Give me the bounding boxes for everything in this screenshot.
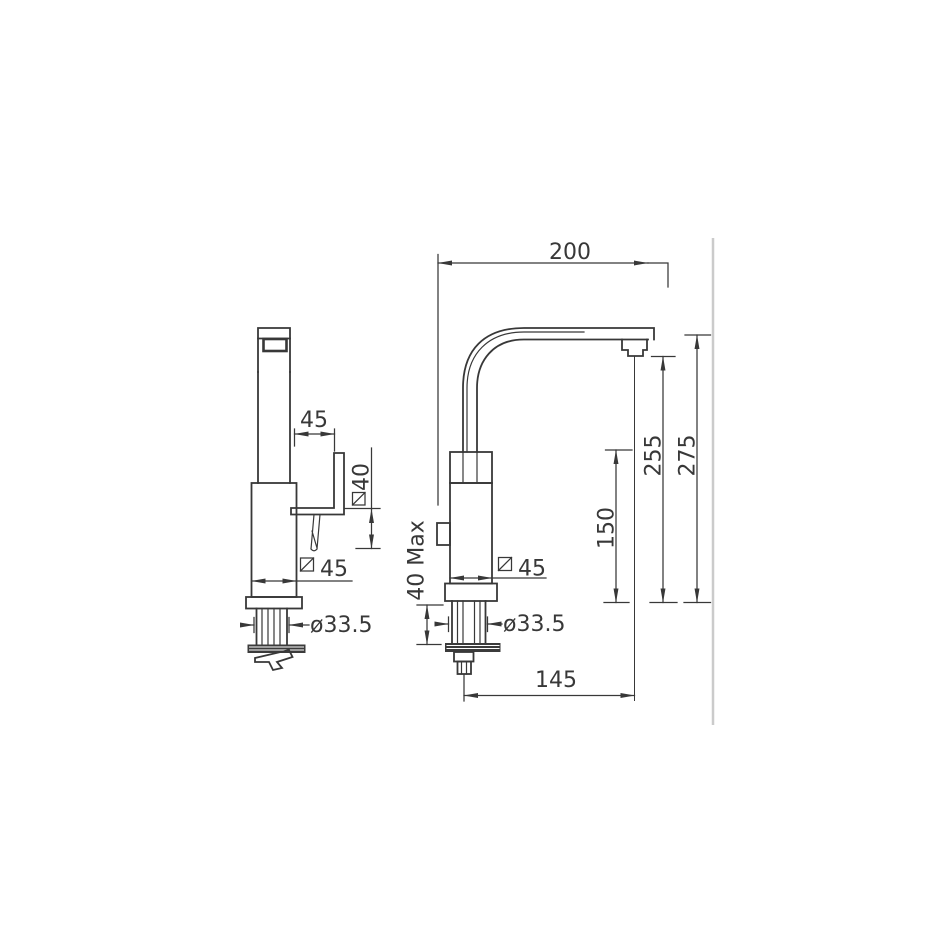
technical-drawing-page: 45 40 45 ø33.5 [0, 0, 950, 950]
neck-section [450, 452, 492, 483]
faucet-body [252, 483, 297, 597]
gooseneck-spout-mid [467, 332, 584, 452]
dimensions-front-view: 45 40 45 ø33.5 [241, 408, 380, 638]
faucet-dimension-drawing: 45 40 45 ø33.5 [0, 0, 950, 950]
shank [257, 609, 288, 645]
dim-spout-reach: 200 [438, 240, 668, 505]
dim-body-width-side: 45 [450, 557, 546, 582]
spout-column [258, 372, 290, 483]
dim-shank-diameter-front: ø33.5 [241, 613, 372, 638]
base-flange [246, 597, 302, 609]
handle-end-view [437, 523, 450, 545]
dim-label-shank-diameter-side: ø33.5 [503, 612, 565, 637]
dim-label-body-width-side: 45 [518, 557, 546, 582]
neck-inner-lines [463, 452, 477, 483]
dim-label-body-width-front: 45 [320, 557, 348, 582]
dim-handle-height: 40 [345, 448, 380, 549]
shank-threads [262, 609, 280, 645]
dim-label-spout-reach: 200 [549, 240, 591, 265]
dim-label-overall-height: 275 [676, 435, 701, 477]
dim-label-handle-height: 40 [350, 463, 375, 491]
gooseneck-spout-outer [463, 328, 654, 452]
supply-nipple-top [454, 652, 474, 662]
aerator [264, 339, 287, 351]
square-section-symbol [353, 493, 366, 506]
shank-threads-side [458, 601, 481, 643]
dim-label-spout-outlet-height: 255 [642, 435, 667, 477]
handle-stem [311, 515, 320, 551]
spout-outlet [622, 340, 647, 357]
square-section-symbol [301, 558, 314, 571]
handle-lever [291, 453, 344, 515]
dim-label-body-top-height: 150 [595, 507, 620, 549]
base-flange-side [445, 584, 497, 602]
dim-spout-outlet-height: 255 [642, 357, 678, 603]
dim-shank-diameter-side: ø33.5 [436, 612, 565, 637]
dim-label-outlet-offset: 145 [535, 668, 577, 693]
supply-nipple [458, 662, 472, 675]
mounting-plate-side [445, 643, 501, 652]
dim-handle-reach: 45 [295, 408, 335, 451]
faucet-body-side [450, 483, 492, 584]
dim-overall-height: 275 [676, 335, 711, 603]
dim-label-shank-diameter-front: ø33.5 [310, 613, 372, 638]
dim-body-width-front: 45 [252, 557, 353, 582]
mounting-plate [248, 645, 306, 654]
dim-label-max-deck-thickness: 40 Max [405, 520, 430, 600]
dim-outlet-offset: 145 [464, 668, 635, 701]
dim-body-top-height: 150 [595, 450, 633, 603]
side-view [437, 328, 654, 701]
dim-label-handle-reach: 45 [300, 408, 328, 433]
square-section-symbol [499, 558, 512, 571]
gooseneck-spout-inner [477, 340, 648, 453]
supply-nipple-lines [462, 662, 467, 675]
